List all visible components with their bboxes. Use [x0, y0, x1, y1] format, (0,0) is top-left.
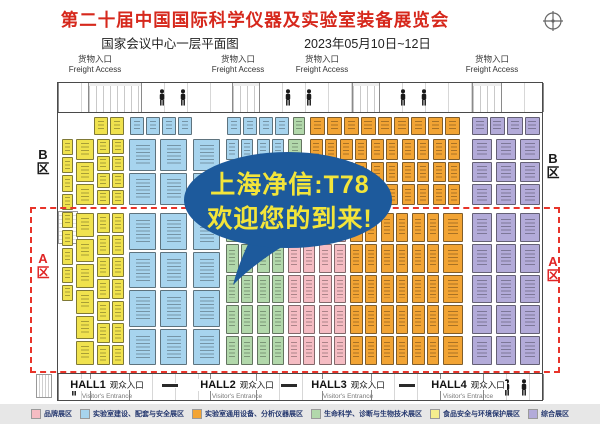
booth: [412, 213, 425, 242]
freight-access-cn: 货物入口: [450, 55, 534, 65]
booth: [97, 213, 110, 233]
legend-bar: 品牌展区实验室建设、配套与安全展区实验室通用设备、分析仪器展区生命科学、诊断与生…: [0, 404, 600, 424]
hall-label-hall4: HALL4观众入口Visitor's Entrance: [428, 375, 508, 400]
booth: [193, 329, 220, 366]
service-room: [58, 83, 89, 112]
booth: [496, 336, 516, 365]
legend-label: 食品安全与环境保护展区: [443, 409, 520, 419]
booth: [226, 305, 239, 334]
date-range-label: 2023年05月10日~12日: [300, 33, 435, 52]
booth: [443, 305, 463, 334]
booth: [496, 213, 516, 242]
legend-swatch: [31, 409, 41, 419]
booth: [259, 117, 273, 135]
booth-zone: [496, 213, 516, 365]
legend-item: 综合展区: [528, 409, 569, 419]
service-room: [501, 83, 544, 112]
booth: [378, 117, 393, 135]
booth: [76, 213, 94, 237]
freight-access-en: Freight Access: [53, 65, 137, 74]
booth: [496, 244, 516, 273]
person-icon: [399, 89, 407, 106]
legend-item: 实验室建设、配套与安全展区: [80, 409, 184, 419]
booth: [112, 323, 125, 343]
booth: [162, 117, 176, 135]
booth: [62, 139, 73, 155]
booth-zone: [76, 213, 94, 365]
booth-zone: [496, 139, 516, 205]
booth-zone: [520, 213, 540, 365]
freight-access-cn: 货物入口: [53, 55, 137, 65]
booth: [507, 117, 523, 135]
booth: [381, 336, 394, 365]
booth: [62, 230, 73, 246]
freight-access-en: Freight Access: [450, 65, 534, 74]
freight-access-label: 货物入口Freight Access: [53, 55, 137, 74]
visitor-entrance-cn: 观众入口: [238, 381, 276, 390]
booth-zone: [472, 139, 492, 205]
booth: [112, 257, 125, 277]
legend-item: 食品安全与环境保护展区: [430, 409, 520, 419]
booth: [427, 336, 440, 365]
booth: [112, 213, 125, 233]
booth: [428, 117, 443, 135]
booth: [350, 305, 363, 334]
area-char: 区: [31, 162, 55, 176]
booth-zone: [520, 139, 540, 205]
booth: [129, 173, 156, 205]
freight-access-label: 货物入口Freight Access: [450, 55, 534, 74]
booth: [445, 117, 460, 135]
booth: [496, 139, 516, 160]
visitor-entrance-cn: 观众入口: [108, 381, 146, 390]
booth: [241, 336, 254, 365]
booth-zone: [97, 213, 124, 365]
booth-zone: [293, 117, 305, 135]
booth: [97, 345, 110, 365]
compass-icon: [542, 10, 564, 32]
legend-item: 实验室通用设备、分析仪器展区: [192, 409, 303, 419]
booth: [520, 213, 540, 242]
booth: [472, 162, 492, 183]
double-door-icon: [161, 383, 179, 388]
booth: [303, 336, 316, 365]
booth: [520, 184, 540, 205]
booth: [272, 305, 285, 334]
hall-label-hall3: HALL3观众入口Visitor's Entrance: [308, 375, 388, 400]
area-label-b: B区: [31, 148, 55, 176]
booth: [288, 305, 301, 334]
hall-name: HALL3: [309, 379, 348, 391]
booth: [433, 139, 446, 160]
booth: [129, 290, 156, 327]
booth: [97, 257, 110, 277]
booth: [520, 336, 540, 365]
booth: [160, 290, 187, 327]
booth: [443, 244, 463, 273]
booth: [344, 117, 359, 135]
booth: [76, 316, 94, 340]
booth: [62, 194, 73, 210]
booth: [94, 117, 108, 135]
service-room: [141, 83, 233, 112]
area-char: 区: [541, 269, 565, 283]
booth: [433, 184, 446, 205]
venue-floor-label: 国家会议中心一层平面图: [95, 33, 245, 52]
area-label-b: B区: [541, 152, 565, 180]
double-door-icon: [398, 383, 416, 388]
booth: [112, 156, 125, 171]
booth-zone: [76, 139, 94, 205]
booth: [112, 173, 125, 188]
booth: [520, 139, 540, 160]
legend-swatch: [430, 409, 440, 419]
booth: [76, 139, 94, 160]
legend-label: 实验室建设、配套与安全展区: [93, 409, 184, 419]
booth: [417, 184, 430, 205]
booth: [97, 156, 110, 171]
booth-zone: [130, 117, 192, 135]
booth: [303, 305, 316, 334]
page-title: 第二十届中国国际科学仪器及实验室装备展览会: [0, 7, 510, 32]
dock-door: [353, 83, 379, 112]
booth: [472, 139, 492, 160]
booth: [97, 323, 110, 343]
legend-item: 生命科学、诊断与生物技术展区: [311, 409, 422, 419]
booth: [427, 244, 440, 273]
booth: [350, 336, 363, 365]
booth-zone: [412, 213, 439, 365]
freight-access-cn: 货物入口: [196, 55, 280, 65]
booth: [427, 305, 440, 334]
booth-zone: [227, 117, 289, 135]
legend-item: 品牌展区: [31, 409, 72, 419]
legend-swatch: [80, 409, 90, 419]
speech-bubble: 上海净信:T78 欢迎您的到来!: [170, 145, 410, 295]
visitor-entrance-en: Visitor's Entrance: [308, 393, 388, 400]
booth: [490, 117, 506, 135]
booth: [496, 184, 516, 205]
legend-label: 综合展区: [541, 409, 569, 419]
area-label-a: A区: [31, 252, 55, 280]
area-char: 区: [31, 266, 55, 280]
booth: [146, 117, 160, 135]
booth: [520, 162, 540, 183]
booth: [112, 301, 125, 321]
booth: [496, 275, 516, 304]
booth: [97, 235, 110, 255]
booth: [62, 248, 73, 264]
booth: [365, 305, 378, 334]
booth: [310, 117, 325, 135]
hall-name: HALL4: [429, 379, 468, 391]
booth: [97, 301, 110, 321]
booth: [76, 239, 94, 263]
booth: [76, 162, 94, 183]
booth: [443, 336, 463, 365]
booth-zone: [433, 139, 460, 205]
person-icon: [520, 379, 528, 396]
person-icon: [284, 89, 292, 106]
booth: [396, 336, 409, 365]
booth: [129, 139, 156, 171]
visitor-entrance-en: Visitor's Entrance: [428, 393, 508, 400]
booth: [448, 139, 461, 160]
booth: [62, 157, 73, 173]
booth: [76, 184, 94, 205]
booth-zone: [94, 117, 124, 135]
dock-door: [89, 83, 141, 112]
booth: [472, 305, 492, 334]
booth: [412, 305, 425, 334]
booth: [319, 336, 332, 365]
person-icon: [305, 89, 313, 106]
hall-name: HALL1: [68, 379, 107, 391]
booth-zone: [472, 117, 540, 135]
legend-label: 实验室通用设备、分析仪器展区: [205, 409, 303, 419]
booth: [257, 305, 270, 334]
booth-zone: [97, 139, 124, 205]
visitor-entrance-cn: 观众入口: [349, 381, 387, 390]
booth: [443, 213, 463, 242]
booth: [396, 305, 409, 334]
legend-label: 生命科学、诊断与生物技术展区: [324, 409, 422, 419]
booth: [520, 305, 540, 334]
booth: [496, 162, 516, 183]
booth-zone: [62, 139, 73, 301]
booth: [472, 336, 492, 365]
booth: [417, 162, 430, 183]
booth: [193, 290, 220, 327]
booth: [327, 117, 342, 135]
booth: [112, 279, 125, 299]
booth: [427, 213, 440, 242]
legend-swatch: [311, 409, 321, 419]
booth: [288, 336, 301, 365]
booth: [178, 117, 192, 135]
booth: [394, 117, 409, 135]
booth: [448, 184, 461, 205]
top-building-strip: [57, 82, 543, 113]
booth: [427, 275, 440, 304]
booth: [319, 305, 332, 334]
freight-access-label: 货物入口Freight Access: [196, 55, 280, 74]
booth: [412, 244, 425, 273]
bubble-welcome-text: 欢迎您的到来!: [178, 199, 402, 235]
booth: [520, 244, 540, 273]
booth: [130, 117, 144, 135]
booth: [334, 336, 347, 365]
booth: [433, 162, 446, 183]
booth: [275, 117, 289, 135]
booth: [112, 139, 125, 154]
booth: [472, 244, 492, 273]
booth: [472, 117, 488, 135]
visitor-entrance-en: Visitor's Entrance: [197, 393, 277, 400]
area-letter: A: [31, 252, 55, 266]
booth: [293, 117, 305, 135]
area-label-a: A区: [541, 255, 565, 283]
person-icon: [420, 89, 428, 106]
hall-label-hall2: HALL2观众入口Visitor's Entrance: [197, 375, 277, 400]
booth: [112, 235, 125, 255]
booth: [129, 213, 156, 250]
person-icon: [179, 89, 187, 106]
freight-access-cn: 货物入口: [280, 55, 364, 65]
booth: [412, 275, 425, 304]
booth: [97, 139, 110, 154]
booth: [272, 336, 285, 365]
area-letter: A: [541, 255, 565, 269]
booth: [472, 213, 492, 242]
freight-access-en: Freight Access: [196, 65, 280, 74]
booth: [448, 162, 461, 183]
booth: [227, 117, 241, 135]
booth: [411, 117, 426, 135]
booth: [472, 275, 492, 304]
legend-swatch: [192, 409, 202, 419]
booth-zone: [129, 139, 156, 205]
booth: [110, 117, 124, 135]
dock-door: [473, 83, 501, 112]
booth: [112, 345, 125, 365]
booth: [472, 184, 492, 205]
booth: [365, 336, 378, 365]
bubble-booth-number: 上海净信:T78: [178, 165, 402, 201]
freight-access-label: 货物入口Freight Access: [280, 55, 364, 74]
area-letter: B: [541, 152, 565, 166]
booth: [334, 305, 347, 334]
booth: [76, 264, 94, 288]
person-icon: [158, 89, 166, 106]
booth-zone: [472, 213, 492, 365]
booth: [412, 336, 425, 365]
exterior-stairs: [36, 374, 52, 398]
booth: [241, 305, 254, 334]
visitor-entrance-cn: 观众入口: [469, 381, 507, 390]
double-door-icon: [280, 383, 298, 388]
booth: [160, 329, 187, 366]
dock-door: [233, 83, 259, 112]
area-char: 区: [541, 166, 565, 180]
booth: [97, 190, 110, 205]
booth: [226, 336, 239, 365]
booth: [97, 279, 110, 299]
booth: [62, 212, 73, 228]
booth: [525, 117, 541, 135]
booth: [520, 275, 540, 304]
booth: [361, 117, 376, 135]
booth: [97, 173, 110, 188]
booth: [443, 275, 463, 304]
booth: [76, 341, 94, 365]
booth: [76, 290, 94, 314]
booth: [243, 117, 257, 135]
booth: [496, 305, 516, 334]
freight-access-en: Freight Access: [280, 65, 364, 74]
exhibition-floorplan-image: { "header": { "title": "第二十届中国国际科学仪器及实验室…: [0, 0, 600, 424]
booth: [129, 252, 156, 289]
area-letter: B: [31, 148, 55, 162]
booth: [417, 139, 430, 160]
legend-swatch: [528, 409, 538, 419]
booth: [257, 336, 270, 365]
hall-label-hall1: HALL1观众入口Visitor's Entrance: [67, 375, 147, 400]
booth: [381, 305, 394, 334]
booth: [62, 175, 73, 191]
legend-label: 品牌展区: [44, 409, 72, 419]
hall-name: HALL2: [198, 379, 237, 391]
booth: [62, 267, 73, 283]
booth-zone: [129, 213, 156, 365]
visitor-entrance-en: Visitor's Entrance: [67, 393, 147, 400]
booth-zone: [310, 117, 460, 135]
booth: [129, 329, 156, 366]
booth-zone: [443, 213, 463, 365]
hall-right-wall: [542, 82, 543, 401]
booth: [62, 285, 73, 301]
booth: [112, 190, 125, 205]
